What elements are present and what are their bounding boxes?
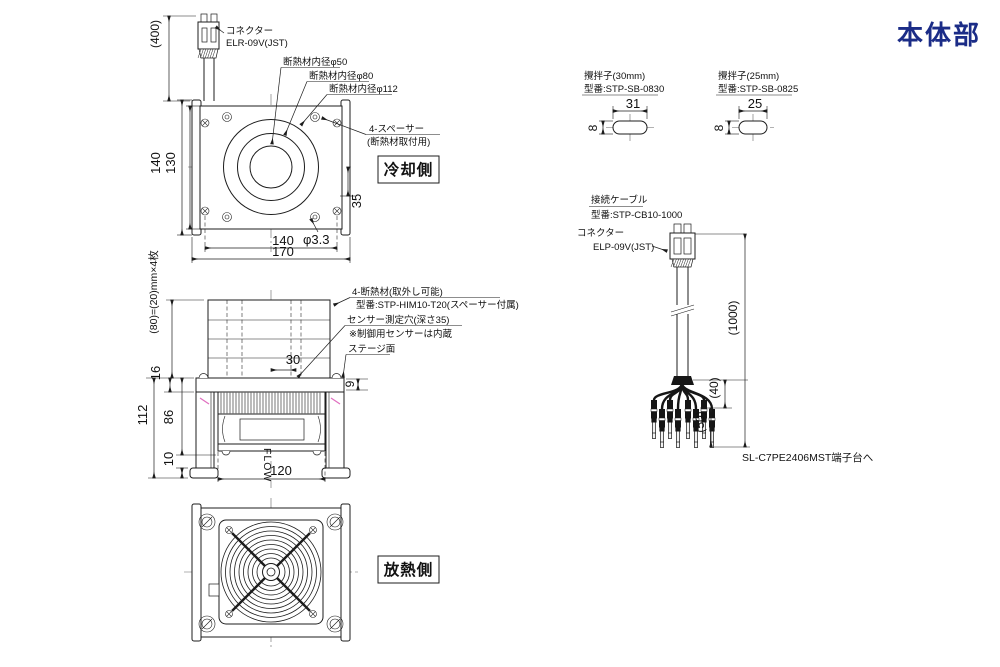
- cable-destination: SL-C7PE2406MST端子台へ: [742, 451, 873, 464]
- dim-foot-10: 10: [161, 452, 176, 466]
- label-insulation: 4-断熱材(取外し可能): [352, 286, 443, 298]
- dim-height-140: 140: [148, 152, 163, 174]
- fan-wire-tab: [209, 584, 219, 596]
- label-bore-50: 断熱材内径φ50: [283, 56, 347, 68]
- stirrer-bar-25: 攪拌子(25mm) 型番:STP-SB-0825 25 8: [712, 70, 798, 141]
- dim-sensor-offset-30: 30: [286, 352, 300, 367]
- cable-dim-1000: (1000): [726, 301, 740, 336]
- dim-body-86: 86: [161, 410, 176, 424]
- label-elr-connector: コネクター: [226, 26, 273, 37]
- stirrer25-dim-25: 25: [748, 96, 762, 111]
- stirrer25-name: 攪拌子(25mm): [718, 70, 779, 82]
- stirrer30-bar: [613, 121, 647, 134]
- dim-total-112: 112: [135, 405, 150, 426]
- label-bore-80: 断熱材内径φ80: [309, 70, 373, 82]
- heat-side-tag: 放熱側: [383, 560, 434, 579]
- dim-height-130: 130: [163, 152, 178, 174]
- stirrer-bar-30: 攪拌子(30mm) 型番:STP-SB-0830 31 8: [582, 70, 664, 141]
- stirrer30-dim-31: 31: [626, 96, 640, 111]
- cable-dim-50: (50): [693, 411, 707, 432]
- stirrer25-model: 型番:STP-SB-0825: [718, 83, 798, 95]
- heatsink-fins: [218, 392, 325, 414]
- connection-cable: 接続ケーブル 型番:STP-CB10-1000 コネクター ELP-09V(JS…: [577, 194, 873, 464]
- cable-connector-model: ELP-09V(JST): [593, 242, 654, 253]
- cable-dim-40: (40): [707, 377, 721, 398]
- dim-stage-16: 16: [148, 366, 163, 380]
- cable-model: 型番:STP-CB10-1000: [591, 209, 682, 221]
- stirrer25-bar: [739, 121, 767, 134]
- label-spacer-note: (断熱材取付用): [367, 136, 430, 148]
- cable-name: 接続ケーブル: [591, 194, 648, 206]
- technical-drawing: 本体部 コネクター ELR-09V(JST) (400): [0, 0, 1000, 667]
- stirrer30-model: 型番:STP-SB-0830: [584, 83, 664, 95]
- stirrer25-dim-8: 8: [712, 124, 726, 131]
- label-bore-112: 断熱材内径φ112: [329, 83, 398, 95]
- label-insulation-model: 型番:STP-HIM10-T20(スペーサー付属): [356, 299, 519, 311]
- cable-connector-label: コネクター: [577, 228, 624, 239]
- cooling-side-view: 断熱材内径φ50 断熱材内径φ80 断熱材内径φ112 4-スペーサー (断熱材…: [148, 56, 440, 263]
- stirrer30-name: 攪拌子(30mm): [584, 70, 645, 82]
- dim-fan-120: 120: [270, 463, 292, 478]
- cooling-plate: [200, 106, 342, 229]
- side-elevation-view: FLOW 4-断熱材(取外し可能) 型番:STP-HIM10-T20(スペーサー…: [135, 250, 519, 488]
- unit-cable-connector: コネクター ELR-09V(JST) (400): [148, 14, 288, 101]
- label-sensor-hole: センサー測定穴(深さ35): [347, 314, 449, 326]
- heat-side-view: 放熱側: [184, 498, 439, 650]
- label-sensor-note: ※制御用センサーは内蔵: [349, 328, 452, 340]
- dim-offset-35: 35: [349, 194, 364, 208]
- dim-hole-dia: φ3.3: [303, 232, 330, 247]
- label-stage-surface: ステージ面: [348, 344, 395, 355]
- dim-lip-9: 9: [343, 380, 357, 387]
- dim-cable-400: (400): [148, 20, 162, 48]
- insulation-note: (80)=(20)mm×4枚: [147, 250, 160, 334]
- stage-plate: [196, 378, 344, 392]
- stirrer30-dim-8: 8: [586, 124, 600, 131]
- page-title: 本体部: [897, 20, 981, 50]
- cooling-side-tag: 冷却側: [384, 160, 434, 179]
- label-elr-connector-model: ELR-09V(JST): [226, 38, 288, 49]
- dim-width-170: 170: [272, 244, 294, 259]
- foot-left: [190, 468, 218, 478]
- foot-right: [322, 468, 350, 478]
- label-spacer: 4-スペーサー: [369, 124, 424, 135]
